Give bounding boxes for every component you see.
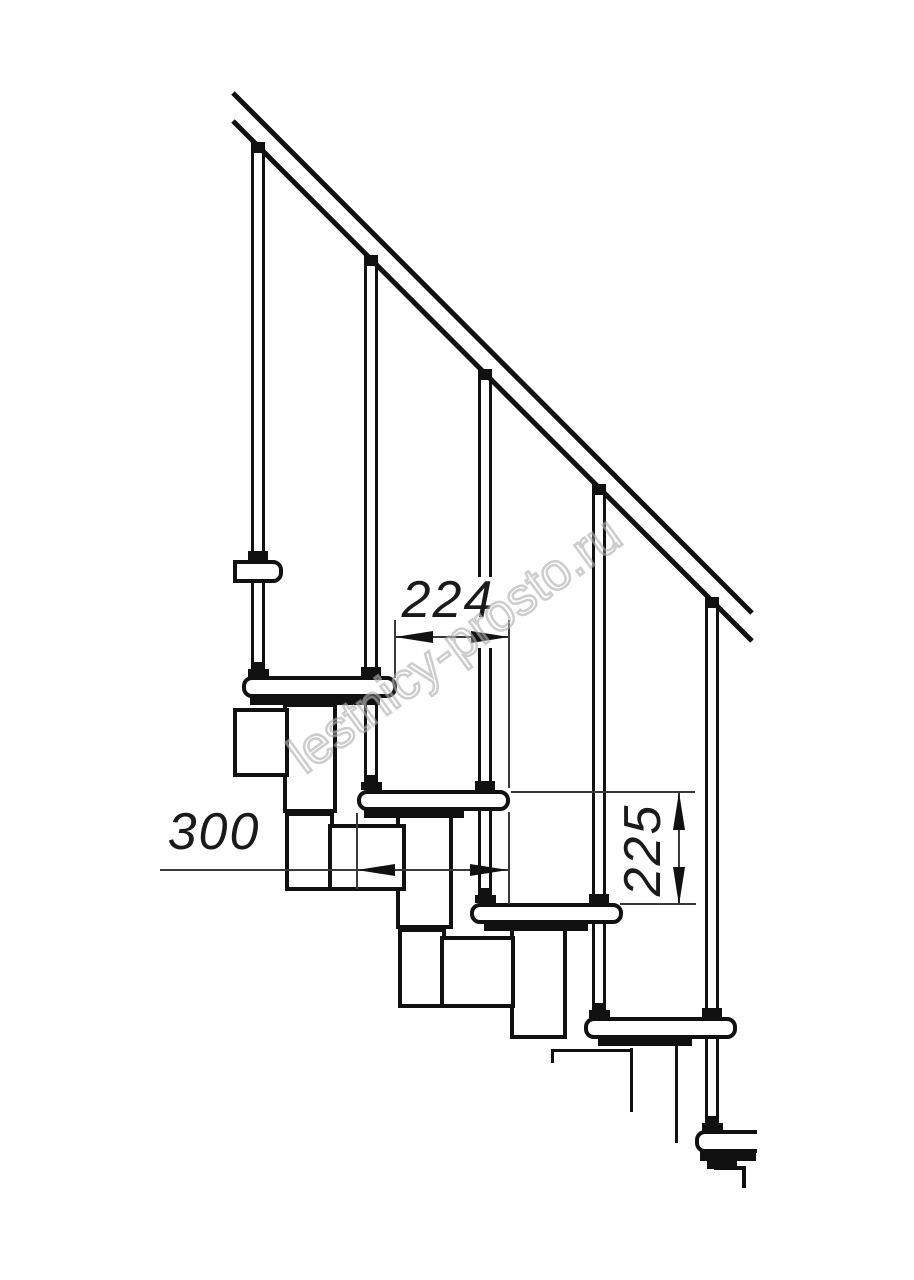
extension-line-224-left — [394, 620, 396, 678]
dimension-224-label: 224 — [396, 574, 500, 622]
extension-line-225-top — [511, 791, 695, 793]
extension-line-224-right — [508, 620, 510, 788]
dimension-300-line — [160, 869, 509, 871]
extension-line-300-left — [356, 813, 358, 889]
dimension-225-label: 225 — [617, 795, 669, 905]
handrail-bottom-line — [233, 121, 752, 641]
dimension-224-arrow-left — [395, 631, 433, 643]
staircase-drawing: 224 300 225 lestnicy-prosto.ru — [0, 0, 914, 1280]
dimension-300-arrow-left — [357, 864, 395, 876]
dimension-300-arrow-right — [470, 864, 508, 876]
extension-line-shared-lower — [508, 812, 510, 904]
handrail-top-line — [233, 93, 752, 613]
dimension-225-arrow-down — [673, 867, 685, 905]
dimension-300-label: 300 — [162, 806, 266, 854]
dimension-225-arrow-up — [673, 792, 685, 830]
handrail — [0, 0, 914, 1280]
dimension-224-arrow-right — [471, 631, 509, 643]
